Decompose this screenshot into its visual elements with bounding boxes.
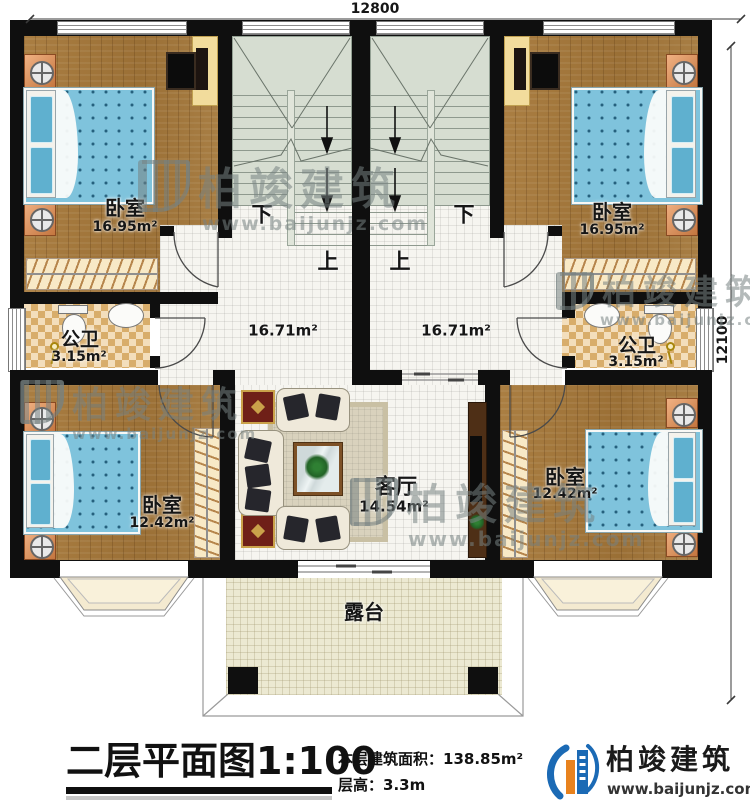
wall-stub-right (548, 226, 562, 236)
window-top-stair-left (242, 21, 350, 35)
hall-r-column (490, 225, 562, 386)
nightstand (24, 530, 56, 560)
wall-bedroomtr-bottom (562, 292, 712, 304)
window-top-stair-right (376, 21, 484, 35)
wardrobe-bl (194, 428, 220, 558)
nightstand (24, 200, 56, 236)
light-symbol-right (666, 342, 675, 351)
sofa-top (276, 388, 350, 432)
closet-tl (26, 258, 158, 290)
tv-tl (166, 52, 196, 90)
wall-bathr-left-a (562, 304, 575, 318)
terrace-post-left (228, 667, 258, 694)
stair-right-lower-treads (370, 206, 431, 246)
brand-name: 柏竣建筑 (606, 746, 734, 774)
wall-pier-bl-door (213, 370, 235, 385)
stair-left-up-label: 上 (318, 252, 339, 273)
wall-bathl-bottom (10, 370, 158, 385)
sofa-bottom (276, 506, 350, 550)
side-table (241, 514, 275, 548)
bed-bl-headboard (26, 434, 54, 528)
bedroom-bl-name: 卧室 (142, 495, 182, 515)
side-table (241, 390, 275, 424)
bedroom-tr-name: 卧室 (592, 202, 632, 222)
wall-living-left (220, 385, 235, 560)
floor-height-value: 3.3m (383, 776, 425, 794)
toilet-tank-right (644, 305, 674, 314)
tv-living (470, 436, 482, 502)
nightstand (24, 54, 56, 88)
wall-bedroomtr-stair (490, 36, 504, 238)
floor-height-label: 层高： (338, 776, 383, 794)
window-top-right (543, 21, 675, 35)
wall-stub-left (160, 226, 174, 236)
bath-l-name: 公卫 (61, 331, 99, 350)
plant-coffee-table (305, 454, 329, 480)
bay-opening-left (60, 561, 188, 578)
bay-window-left (54, 577, 194, 616)
wall-bathl-right-b (150, 356, 160, 368)
bedroom-bl-area: 12.42m² (129, 516, 194, 530)
stair-right-up-label: 上 (390, 252, 411, 273)
terrace-floor (226, 575, 502, 695)
wall-living-right (485, 385, 500, 560)
title-underline-bar (66, 787, 332, 794)
nightstand (24, 402, 56, 432)
floor-height-row: 层高：3.3m (338, 778, 425, 793)
wall-bedroomtl-stair (218, 36, 232, 238)
nightstand (666, 200, 698, 236)
sink-right (584, 303, 620, 328)
bedroom-tr-area: 16.95m² (579, 223, 644, 237)
terrace-door-opening (298, 561, 430, 578)
bay-opening-right (534, 561, 662, 578)
nightstand (666, 398, 698, 428)
tv-tr (530, 52, 560, 90)
wall-living-top-right (478, 370, 510, 385)
wardrobe-br (502, 430, 528, 558)
bed-br-headboard (668, 432, 696, 526)
bath-r-name: 公卫 (618, 337, 656, 356)
tv-console-tr (514, 48, 526, 90)
sofa-left (238, 430, 284, 516)
dimension-top-label: 12800 (351, 2, 400, 16)
hall-l-column (160, 225, 232, 386)
floor-area-label: 本层建筑面积： (338, 750, 443, 768)
living-area: 14.54m² (359, 500, 429, 515)
stair-right-stringer (427, 90, 435, 246)
floor-area-value: 138.85m² (443, 750, 523, 768)
bath-l-area: 3.15m² (51, 350, 106, 364)
brand-website: www.baijunjz.com (607, 782, 750, 797)
floorplan-page: 卧室 16.95m² 卧室 16.95m² 公卫 3.15m² 公卫 3.15m… (0, 0, 750, 806)
wall-bedroomtl-bottom (10, 292, 218, 304)
title-underline-bar-light (66, 796, 332, 800)
wall-bathr-bottom (565, 370, 712, 385)
plan-title-row: 二层平面图1:100 (66, 742, 377, 780)
bed-tr-headboard (666, 90, 696, 198)
bedroom-tl-area: 16.95m² (92, 220, 157, 234)
window-left-bath (8, 308, 26, 372)
sink-left (108, 303, 144, 328)
nightstand (666, 54, 698, 88)
stair-left-lower-treads (291, 206, 352, 246)
wall-living-top-mid (352, 370, 402, 385)
bedroom-br-area: 12.42m² (532, 487, 597, 501)
window-right-bath (696, 308, 714, 372)
terrace-post-right (468, 667, 498, 694)
stair-left-stringer (287, 90, 295, 246)
closet-tr (564, 258, 696, 290)
plant-tv-cabinet (470, 514, 484, 530)
wall-mid-stair (352, 36, 370, 373)
bed-tl-headboard (26, 90, 56, 198)
bedroom-tl-name: 卧室 (105, 198, 145, 218)
bedroom-br-name: 卧室 (545, 467, 585, 487)
hall-l-area: 16.71m² (248, 324, 318, 339)
floor-area-row: 本层建筑面积：138.85m² (338, 752, 523, 767)
wall-bathl-right-a (150, 304, 160, 318)
wall-bathr-left-b (562, 356, 575, 368)
brand-logo-icon (544, 740, 602, 802)
plan-title: 二层平面图 (66, 739, 256, 783)
tv-console-tl (196, 48, 208, 90)
stair-left-down-label: 下 (252, 205, 273, 226)
living-name: 客厅 (375, 477, 417, 498)
window-top-left (57, 21, 187, 35)
terrace-name: 露台 (344, 602, 384, 622)
bath-r-area: 3.15m² (608, 355, 663, 369)
bay-window-right (528, 577, 668, 616)
stair-right-down-label: 下 (454, 205, 475, 226)
dimension-right-label: 12100 (716, 316, 730, 365)
toilet-tank-left (58, 305, 88, 314)
hall-r-area: 16.71m² (421, 324, 491, 339)
